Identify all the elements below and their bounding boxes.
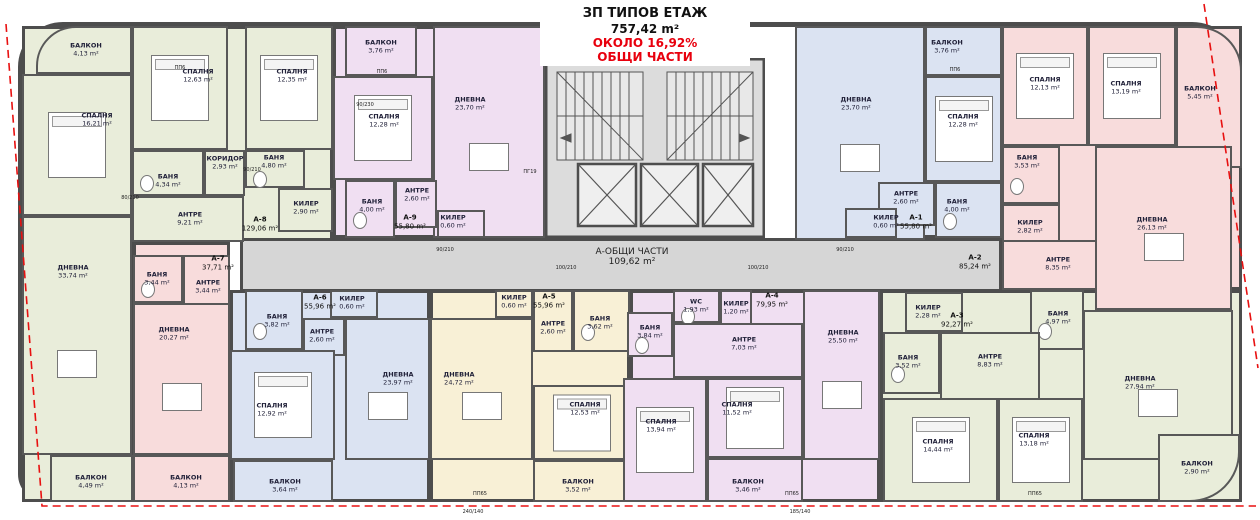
toilet-icon <box>1010 178 1024 195</box>
room <box>133 455 230 502</box>
staircase-icon <box>557 72 643 160</box>
room <box>245 290 303 350</box>
room <box>133 255 183 303</box>
bed-icon <box>1016 53 1074 119</box>
room <box>940 332 1040 402</box>
room <box>935 182 1002 238</box>
room <box>233 460 333 502</box>
room <box>430 318 533 460</box>
common-area-label: А-ОБЩИ ЧАСТИ 109,62 m² <box>596 247 669 267</box>
bed-icon <box>48 112 106 178</box>
room <box>245 26 333 150</box>
toilet-icon <box>891 366 905 383</box>
bed-icon <box>553 394 611 451</box>
room <box>245 150 305 188</box>
toilet-icon <box>1038 323 1052 340</box>
bed-icon <box>935 96 993 162</box>
room <box>707 458 803 502</box>
room <box>533 385 630 460</box>
common-parts-caption: ОБЩИ ЧАСТИ <box>540 50 750 64</box>
room <box>495 290 533 318</box>
room <box>905 292 963 332</box>
dimension-mark: 240/140 <box>463 509 484 515</box>
room <box>627 312 673 357</box>
room <box>673 323 803 378</box>
room <box>998 398 1083 502</box>
room <box>22 216 132 455</box>
staircase-elevator-core <box>545 58 765 238</box>
dining-table-icon <box>368 392 408 420</box>
dining-table-icon <box>162 383 202 411</box>
floor-title: ЗП ТИПОВ ЕТАЖ <box>540 6 750 21</box>
elevator-icon <box>578 164 753 226</box>
dining-table-icon <box>840 144 880 172</box>
common-parts-percent: ОКОЛО 16,92% <box>540 36 750 50</box>
bed-icon <box>912 417 970 483</box>
toilet-icon <box>943 213 957 230</box>
room <box>183 255 230 310</box>
room <box>395 180 437 228</box>
floor-plan-canvas: БАЛКОН4,13 m²СПАЛНЯ12,63 m²СПАЛНЯ16,21 m… <box>0 0 1260 520</box>
room <box>803 290 880 460</box>
room <box>533 460 630 502</box>
staircase-icon <box>667 72 753 160</box>
room <box>50 455 133 502</box>
room <box>883 398 998 502</box>
dining-table-icon <box>462 392 502 420</box>
room <box>132 196 244 242</box>
room <box>1002 240 1100 290</box>
room <box>345 180 395 238</box>
title-block: ЗП ТИПОВ ЕТАЖ 757,42 m² ОКОЛО 16,92% ОБЩ… <box>540 4 750 66</box>
room <box>673 290 720 323</box>
toilet-icon <box>253 171 267 188</box>
room <box>433 26 545 238</box>
room <box>330 290 378 318</box>
room <box>230 350 335 460</box>
room <box>845 208 897 238</box>
toilet-icon <box>635 337 649 354</box>
toilet-icon <box>253 323 267 340</box>
room <box>345 26 417 76</box>
dimension-mark: 185/140 <box>790 509 811 515</box>
dining-table-icon <box>57 350 97 378</box>
toilet-icon <box>353 212 367 229</box>
toilet-icon <box>141 281 155 298</box>
room <box>333 76 433 180</box>
room <box>1002 146 1060 204</box>
bed-icon <box>1012 417 1070 483</box>
common-area-name: А-ОБЩИ ЧАСТИ <box>596 247 669 257</box>
bed-icon <box>636 407 694 473</box>
room <box>132 150 204 196</box>
toilet-icon <box>581 324 595 341</box>
room <box>573 290 630 352</box>
room <box>925 26 1002 76</box>
bed-icon <box>354 95 412 161</box>
room <box>204 150 245 196</box>
room <box>707 378 803 458</box>
dining-table-icon <box>822 381 862 409</box>
room <box>133 303 230 455</box>
room <box>925 76 1002 182</box>
room <box>1088 26 1176 146</box>
bed-icon <box>260 55 318 121</box>
bed-icon <box>254 372 312 438</box>
room <box>720 290 752 327</box>
room <box>1095 146 1232 310</box>
room <box>883 332 940 394</box>
floor-total-area: 757,42 m² <box>540 22 750 36</box>
bed-icon <box>726 387 784 449</box>
room <box>132 26 228 150</box>
room <box>22 74 132 216</box>
dining-table-icon <box>1138 389 1178 417</box>
toilet-icon <box>140 175 154 192</box>
dining-table-icon <box>469 143 509 171</box>
common-area-value: 109,62 m² <box>609 257 656 267</box>
room <box>533 290 573 352</box>
bed-icon <box>1103 53 1161 119</box>
room <box>345 318 430 460</box>
room <box>437 210 485 238</box>
room <box>278 188 333 232</box>
room <box>1002 26 1088 146</box>
dining-table-icon <box>1144 233 1184 261</box>
bed-icon <box>151 55 209 121</box>
room <box>623 378 707 502</box>
